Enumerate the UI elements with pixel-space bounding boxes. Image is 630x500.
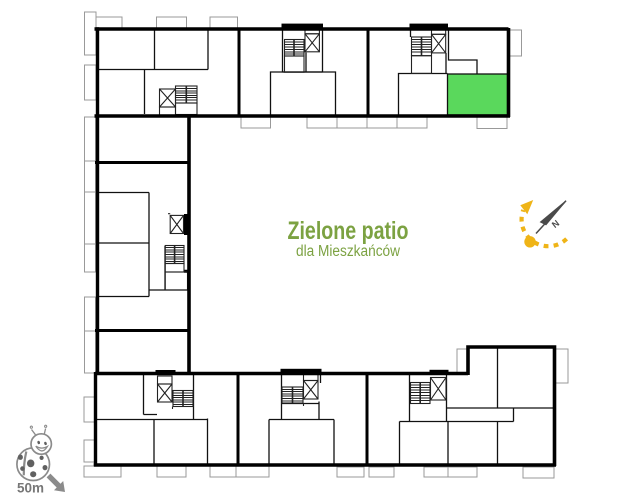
svg-text:50m: 50m [17, 481, 44, 496]
svg-text:dla Mieszkańców: dla Mieszkańców [296, 243, 401, 260]
svg-text:Zielone patio: Zielone patio [288, 217, 409, 245]
